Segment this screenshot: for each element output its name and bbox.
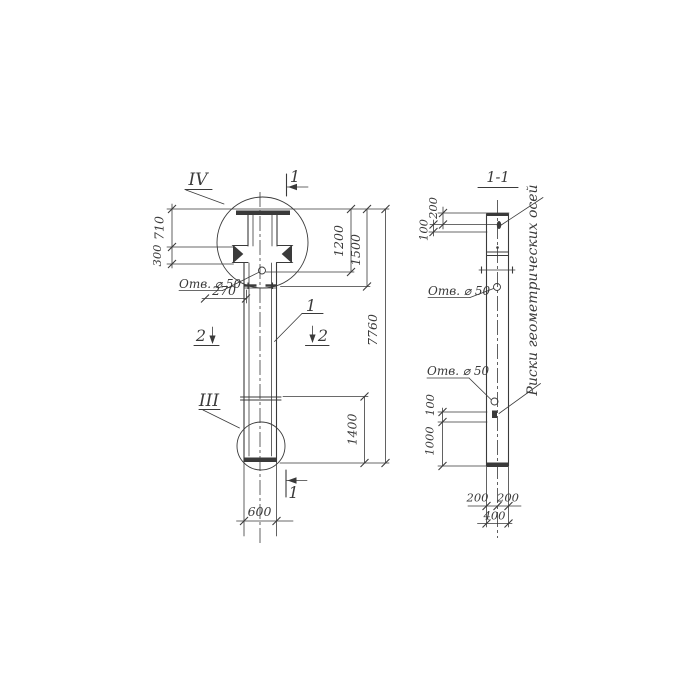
dimension-1200: 1200 <box>266 205 355 276</box>
section-joint-cross <box>479 267 515 274</box>
dimension-1400-value: 1400 <box>345 414 360 446</box>
dimension-400-value: 400 <box>483 509 506 523</box>
corbel-flare-right <box>277 246 292 263</box>
dimension-100-bottom-value: 100 <box>423 394 437 416</box>
lifting-hole-front <box>259 267 266 274</box>
corbel-flare-left <box>233 246 248 263</box>
column-neck <box>248 215 277 246</box>
section-cut-2-left-label: 2 <box>195 326 206 345</box>
section-cut-2-left: 2 <box>194 326 219 346</box>
dimension-710-300: 710 300 <box>150 204 234 268</box>
section-cut-2-right: 2 <box>306 326 330 346</box>
dimension-200-right-value: 200 <box>496 491 519 505</box>
section-cut-1-bottom: 1 <box>286 470 307 502</box>
detail-marker-iii: III <box>198 391 240 428</box>
section-cut-2-right-label: 2 <box>317 326 328 345</box>
dimension-270-value: 270 <box>211 283 236 298</box>
dimension-7760: 7760 <box>365 205 390 467</box>
section-cut-1-bottom-label: 1 <box>288 483 298 502</box>
drawing-sheet: IV III 1 1 2 <box>0 0 700 700</box>
dimension-200-200-400: 200 200 400 <box>466 467 521 528</box>
hole-callout-section-upper-label: Отв. ⌀ 50 <box>428 284 491 298</box>
axes-note-label: Риски геометрических осей <box>525 184 541 396</box>
detail-marker-iv: IV <box>185 170 224 204</box>
detail-marker-iv-label: IV <box>188 170 210 190</box>
dimension-200-left-value: 200 <box>466 491 489 505</box>
section-title: 1-1 <box>478 170 518 188</box>
column-technical-drawing: IV III 1 1 2 <box>0 0 700 700</box>
dimension-1200-value: 1200 <box>331 225 346 257</box>
dimension-1500-value: 1500 <box>348 234 363 266</box>
dimension-1500: 1500 <box>281 205 372 291</box>
dimension-300-value: 300 <box>150 245 164 267</box>
hole-callout-section-lower-label: Отв. ⌀ 50 <box>427 364 490 378</box>
section-view-1-1: 1-1 Отв. ⌀ 50 <box>417 170 544 538</box>
dimension-200-top-value: 200 <box>426 197 440 220</box>
hole-callout-section-upper: Отв. ⌀ 50 <box>428 284 494 298</box>
dimension-600-value: 600 <box>248 504 272 519</box>
part-mark-1-label: 1 <box>306 296 316 315</box>
part-mark-1: 1 <box>275 296 324 342</box>
lifting-hole-section-lower <box>491 398 498 405</box>
dimension-100-top-value: 100 <box>417 219 431 241</box>
axes-note: Риски геометрических осей <box>499 184 543 413</box>
section-cut-1-top-label: 1 <box>290 167 300 186</box>
dimension-1000-value: 1000 <box>423 426 437 455</box>
column-cap-plate <box>236 211 290 216</box>
dimension-200-100-top: 200 100 <box>417 197 510 241</box>
dimension-710-value: 710 <box>152 216 167 240</box>
axis-mark-bottom <box>492 411 497 419</box>
center-dot <box>496 246 499 249</box>
dimension-7760-value: 7760 <box>365 314 380 346</box>
lifting-hole-section-upper <box>494 284 501 291</box>
front-view: IV III 1 1 2 <box>150 167 390 545</box>
detail-marker-iii-label: III <box>198 391 219 411</box>
dimension-600: 600 <box>237 462 294 536</box>
dimension-100-1000-bottom: 100 1000 <box>423 394 506 470</box>
joint-mark-lower <box>241 397 282 400</box>
section-cut-1-top: 1 <box>287 167 309 196</box>
section-title-label: 1-1 <box>486 170 509 186</box>
dimension-1400: 1400 <box>280 393 389 468</box>
